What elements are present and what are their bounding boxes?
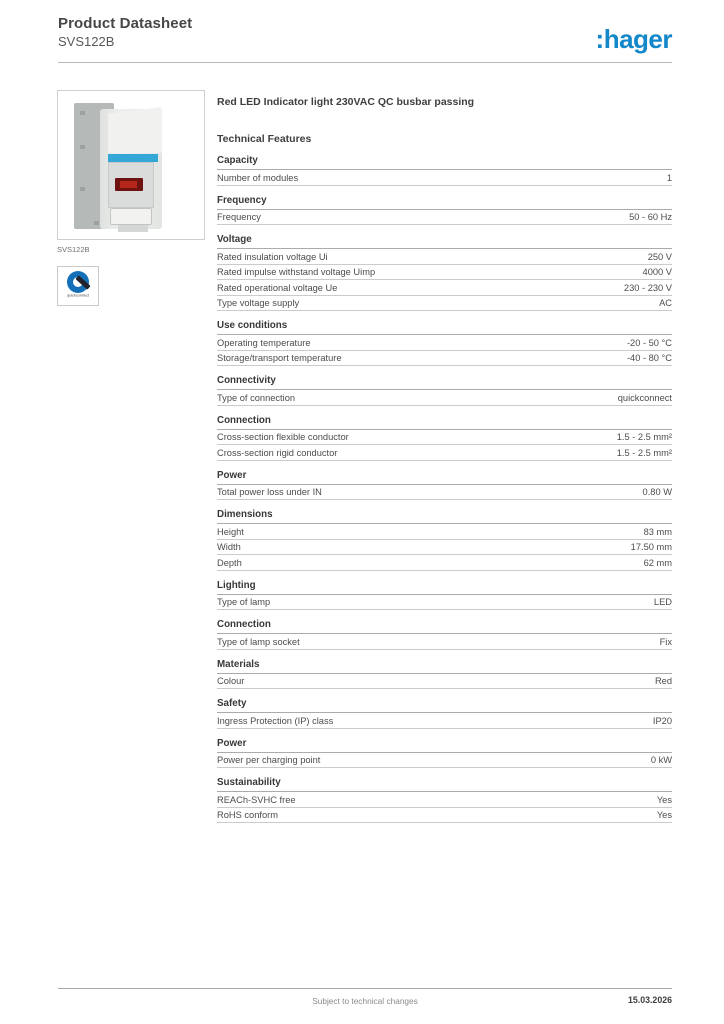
spec-label: Type of lamp socket (217, 637, 300, 647)
spec-section: ConnectionCross-section flexible conduct… (217, 415, 672, 461)
spec-value: LED (644, 597, 672, 607)
spec-row: Frequency50 - 60 Hz (217, 210, 672, 226)
spec-label: Rated operational voltage Ue (217, 283, 337, 293)
spec-value: 0.80 W (633, 487, 672, 497)
spec-row: Depth62 mm (217, 555, 672, 571)
footer-note: Subject to technical changes (58, 996, 672, 1006)
spec-value: 1 (657, 173, 672, 183)
red-led-light (120, 181, 137, 188)
product-title: Red LED Indicator light 230VAC QC busbar… (217, 90, 672, 108)
section-title: Lighting (217, 580, 672, 595)
spec-value: 4000 V (633, 267, 672, 277)
section-title: Sustainability (217, 777, 672, 792)
spec-section: FrequencyFrequency50 - 60 Hz (217, 195, 672, 226)
spec-label: Storage/transport temperature (217, 353, 342, 363)
spec-row: ColourRed (217, 674, 672, 690)
spec-section: Use conditionsOperating temperature-20 -… (217, 320, 672, 366)
spec-row: REACh-SVHC freeYes (217, 792, 672, 808)
spec-value: 230 - 230 V (614, 283, 672, 293)
product-reference: SVS122B (58, 34, 672, 49)
quickconnect-badge-label: quickconnect (66, 294, 91, 298)
spec-section: ConnectivityType of connectionquickconne… (217, 375, 672, 406)
spec-value: IP20 (643, 716, 672, 726)
section-title: Power (217, 470, 672, 485)
spec-value: -20 - 50 °C (617, 338, 672, 348)
spec-row: Cross-section flexible conductor1.5 - 2.… (217, 430, 672, 446)
spec-label: Type of connection (217, 393, 295, 403)
spec-section: LightingType of lampLED (217, 580, 672, 611)
product-lower-section (110, 208, 152, 225)
product-image-caption: SVS122B (57, 245, 207, 254)
spec-row: Rated impulse withstand voltage Uimp4000… (217, 265, 672, 281)
quickconnect-icon (67, 271, 89, 293)
spec-section: CapacityNumber of modules1 (217, 155, 672, 186)
spec-label: Frequency (217, 212, 261, 222)
spec-label: Rated impulse withstand voltage Uimp (217, 267, 375, 277)
spec-label: Ingress Protection (IP) class (217, 716, 333, 726)
spec-row: Storage/transport temperature-40 - 80 °C (217, 351, 672, 367)
spec-section: SafetyIngress Protection (IP) classIP20 (217, 698, 672, 729)
spec-value: Red (645, 676, 672, 686)
section-title: Power (217, 738, 672, 753)
spec-label: Depth (217, 558, 242, 568)
section-title: Connection (217, 619, 672, 634)
spec-label: REACh-SVHC free (217, 795, 296, 805)
spec-value: -40 - 80 °C (617, 353, 672, 363)
page-footer: Subject to technical changes 15.03.2026 (58, 988, 672, 1014)
spec-label: Colour (217, 676, 244, 686)
spec-row: Width17.50 mm (217, 540, 672, 556)
product-module-top (108, 107, 162, 153)
spec-section: PowerTotal power loss under IN0.80 W (217, 470, 672, 501)
section-title: Connection (217, 415, 672, 430)
technical-features-heading: Technical Features (217, 133, 672, 145)
spec-section: DimensionsHeight83 mmWidth17.50 mmDepth6… (217, 509, 672, 571)
page-title: Product Datasheet (58, 0, 672, 32)
spec-label: Cross-section rigid conductor (217, 448, 337, 458)
spec-row: Type voltage supplyAC (217, 296, 672, 312)
spec-row: Type of connectionquickconnect (217, 390, 672, 406)
spec-section: ConnectionType of lamp socketFix (217, 619, 672, 650)
red-led-window (115, 178, 143, 191)
section-title: Safety (217, 698, 672, 713)
spec-row: Cross-section rigid conductor1.5 - 2.5 m… (217, 445, 672, 461)
spec-value: Fix (650, 637, 672, 647)
spec-label: Cross-section flexible conductor (217, 432, 349, 442)
hager-logo: :hager (596, 24, 672, 55)
spec-value: 1.5 - 2.5 mm² (607, 448, 672, 458)
spec-label: Operating temperature (217, 338, 311, 348)
section-title: Use conditions (217, 320, 672, 335)
spec-row: Type of lamp socketFix (217, 634, 672, 650)
spec-row: Number of modules1 (217, 170, 672, 186)
spec-section: MaterialsColourRed (217, 659, 672, 690)
spec-value: 0 kW (641, 755, 672, 765)
spec-value: 17.50 mm (621, 542, 672, 552)
spec-sections: CapacityNumber of modules1FrequencyFrequ… (217, 155, 672, 823)
spec-label: Rated insulation voltage Ui (217, 252, 328, 262)
spec-value: quickconnect (608, 393, 672, 403)
page-header: Product Datasheet SVS122B :hager (58, 0, 672, 63)
spec-row: Type of lampLED (217, 595, 672, 611)
spec-label: Type voltage supply (217, 298, 299, 308)
spec-row: Power per charging point0 kW (217, 753, 672, 769)
spec-label: Power per charging point (217, 755, 320, 765)
spec-row: Rated operational voltage Ue230 - 230 V (217, 280, 672, 296)
spec-label: RoHS conform (217, 810, 278, 820)
spec-label: Width (217, 542, 241, 552)
spec-value: 50 - 60 Hz (619, 212, 672, 222)
spec-row: Total power loss under IN0.80 W (217, 485, 672, 501)
spec-value: Yes (647, 795, 672, 805)
spec-label: Number of modules (217, 173, 298, 183)
section-title: Capacity (217, 155, 672, 170)
datasheet-page: Product Datasheet SVS122B :hager SVS122B… (0, 0, 724, 1024)
spec-value: Yes (647, 810, 672, 820)
section-title: Materials (217, 659, 672, 674)
footer-date: 15.03.2026 (628, 995, 672, 1005)
section-title: Connectivity (217, 375, 672, 390)
spec-row: Rated insulation voltage Ui250 V (217, 249, 672, 265)
spec-value: 83 mm (634, 527, 672, 537)
spec-value: 62 mm (634, 558, 672, 568)
spec-section: SustainabilityREACh-SVHC freeYesRoHS con… (217, 777, 672, 823)
quickconnect-badge: quickconnect (57, 266, 99, 306)
spec-label: Type of lamp (217, 597, 270, 607)
spec-column: Red LED Indicator light 230VAC QC busbar… (217, 90, 672, 823)
product-foot (118, 225, 148, 232)
section-title: Frequency (217, 195, 672, 210)
spec-value: AC (649, 298, 672, 308)
section-title: Voltage (217, 234, 672, 249)
spec-value: 1.5 - 2.5 mm² (607, 432, 672, 442)
product-label-strip (108, 154, 158, 162)
section-title: Dimensions (217, 509, 672, 524)
spec-section: PowerPower per charging point0 kW (217, 738, 672, 769)
spec-label: Total power loss under IN (217, 487, 322, 497)
spec-row: Operating temperature-20 - 50 °C (217, 335, 672, 351)
spec-section: VoltageRated insulation voltage Ui250 VR… (217, 234, 672, 311)
spec-value: 250 V (638, 252, 672, 262)
spec-row: Ingress Protection (IP) classIP20 (217, 713, 672, 729)
spec-row: RoHS conformYes (217, 808, 672, 824)
product-image (57, 90, 205, 240)
product-media-column: SVS122B quickconnect (57, 90, 207, 306)
spec-row: Height83 mm (217, 524, 672, 540)
spec-label: Height (217, 527, 244, 537)
